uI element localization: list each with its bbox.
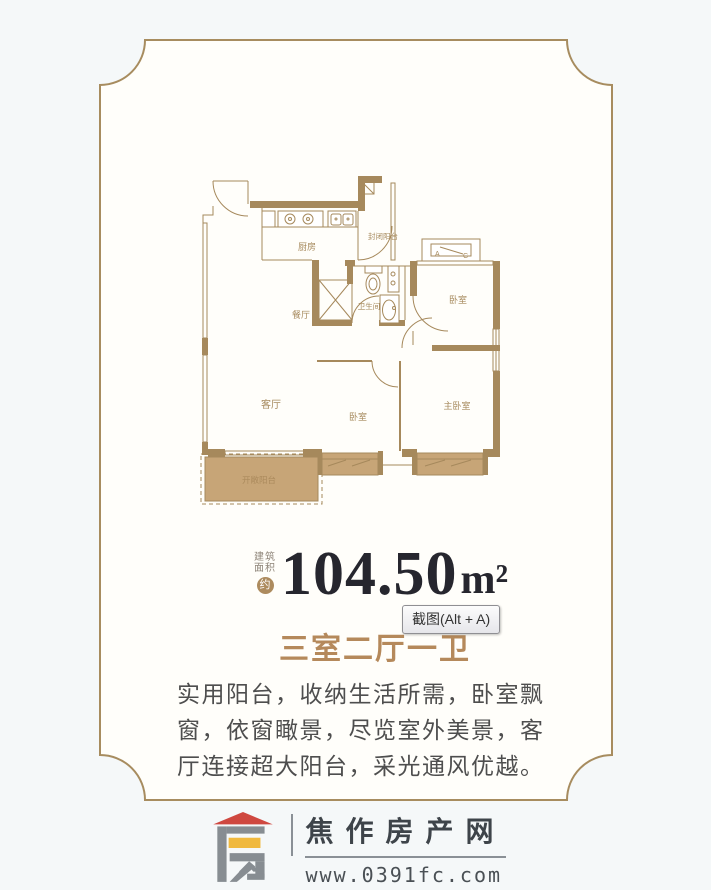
site-url: www.0391fc.com [305,863,505,887]
ac-letter-a: A [435,251,440,258]
site-name: 焦作房产网 [305,810,505,858]
ac-letter-c: C [463,253,468,260]
footer-text: 焦作房产网 www.0391fc.com [305,810,505,887]
entry-door-arc [213,181,248,216]
logo-yellow-bar [229,838,261,848]
room-label-bathroom: 卫生间 [358,301,381,311]
bedroom-mid-door-arc [372,361,398,387]
room-label-kitchen: 厨房 [298,241,316,252]
room-label-master-bedroom: 主卧室 [443,400,470,411]
room-label-open-balcony: 开敞阳台 [242,475,276,485]
room-label-bedroom-top: 卧室 [449,294,467,305]
toilet-symbol [365,266,382,273]
fridge-symbol [262,211,275,227]
description-line: 实用阳台，收纳生活所需，卧室飘 [177,676,557,712]
layout-title: 三室二厅一卫 [105,624,645,668]
bay-window-symbol [417,453,483,475]
footer: 焦作房产网 www.0391fc.com [0,806,711,890]
description-line: 窗，依窗瞰景，尽览室外美景，客 [177,712,557,748]
room-label-dining: 餐厅 [292,309,310,320]
area-figure: 建筑 面积 约 104.50 m² [254,550,508,598]
master-door-arc [402,318,432,348]
room-labels: 厨房 封闭阳台 餐厅 卫生间 卧室 客厅 卧室 主卧室 开敞阳台 [242,231,471,485]
description-line: 厅连接超大阳台，采光通风优越。 [177,748,557,784]
logo-gray-strokes [218,826,265,881]
site-logo-icon [205,810,281,886]
bay-window-symbol [322,453,378,475]
area-prefix: 建筑 面积 约 [254,552,276,594]
footer-divider [291,814,293,856]
room-label-living: 客厅 [261,398,281,411]
area-unit: m² [461,563,509,597]
floor-plan: A C 厨房 封闭阳台 餐厅 卫生间 卧室 客厅 卧室 主卧室 开敞阳台 [195,168,525,513]
room-label-bedroom-mid: 卧室 [349,411,367,422]
bedroom-door-arc [413,296,448,331]
area-prefix-line1: 建筑 [254,552,276,563]
logo-roof-shape [214,812,274,824]
area-value: 104.50 [281,550,458,598]
screenshot-tooltip: 截图(Alt + A) [402,605,500,634]
area-prefix-line2: 面积 [254,563,276,574]
approx-badge: 约 [257,577,274,594]
shelf-symbol [388,266,399,292]
description: 实用阳台，收纳生活所需，卧室飘 窗，依窗瞰景，尽览室外美景，客 厅连接超大阳台，… [177,676,557,784]
room-label-enclosed-balcony: 封闭阳台 [368,231,398,241]
